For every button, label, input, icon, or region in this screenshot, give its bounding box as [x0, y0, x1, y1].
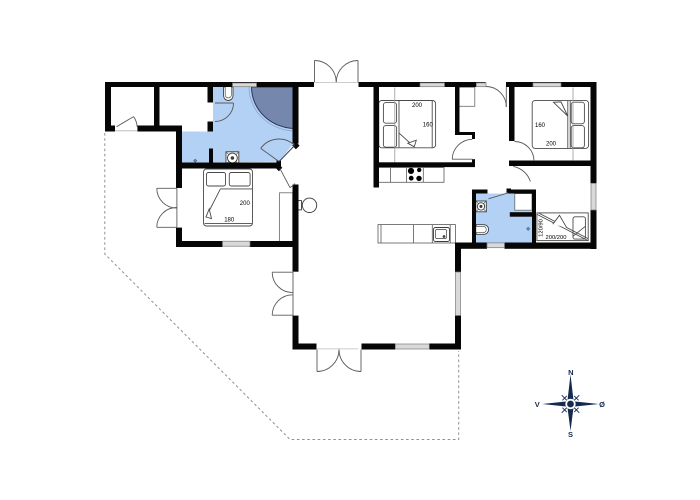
svg-text:160: 160 [423, 123, 434, 129]
svg-text:200: 200 [546, 142, 557, 148]
svg-text:200: 200 [240, 201, 251, 207]
svg-text:200/200: 200/200 [546, 235, 567, 241]
svg-text:200: 200 [412, 103, 423, 109]
svg-text:120/90: 120/90 [538, 219, 544, 237]
svg-text:180: 180 [224, 217, 235, 223]
svg-text:N: N [568, 368, 573, 377]
svg-text:V: V [535, 400, 540, 409]
svg-text:Ø: Ø [599, 400, 605, 409]
svg-text:160: 160 [535, 123, 546, 129]
svg-text:S: S [568, 430, 573, 439]
